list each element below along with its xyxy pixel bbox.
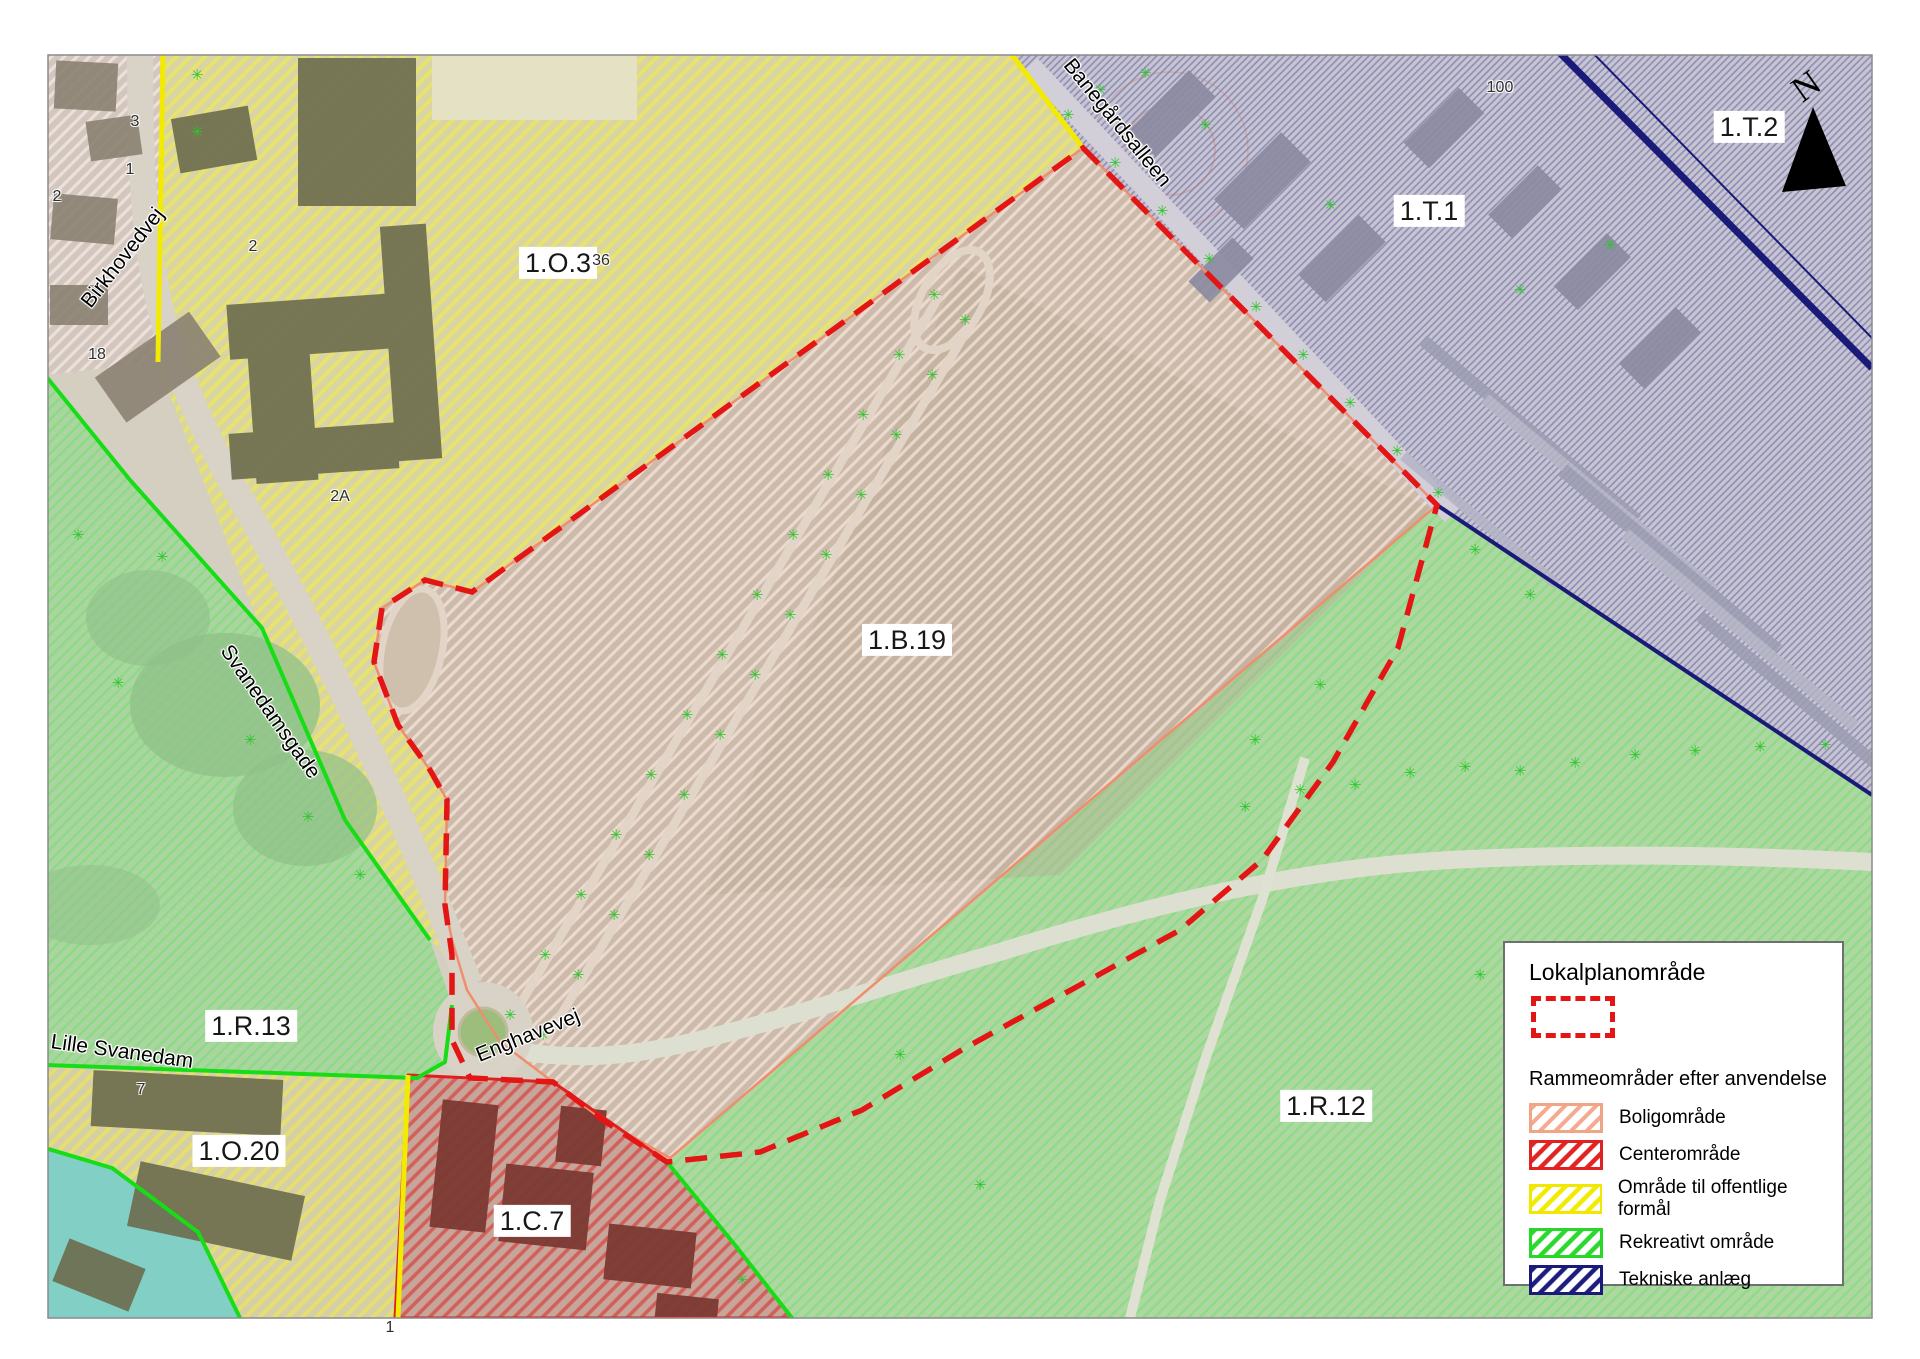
tree-symbol: ✳	[1062, 106, 1075, 124]
tree-symbol: ✳	[1109, 154, 1122, 172]
lokalplan-boundary-symbol	[1531, 996, 1615, 1038]
tree-symbol: ✳	[716, 646, 729, 664]
tree-symbol: ✳	[643, 846, 656, 864]
tree-symbol: ✳	[572, 966, 585, 984]
tree-symbol: ✳	[678, 786, 691, 804]
tree-symbol: ✳	[575, 886, 588, 904]
swatch-boligomraade	[1529, 1103, 1603, 1133]
tree-symbol: ✳	[1629, 746, 1642, 764]
lokalplan-map-page: ✳✳✳✳✳✳✳✳✳✳✳✳✳✳✳✳✳✳✳✳✳✳✳✳✳✳✳✳✳✳✳✳✳✳✳✳✳✳✳✳…	[0, 0, 1920, 1359]
tree-symbol: ✳	[1469, 541, 1482, 559]
legend-row-tekniske: Tekniske anlæg	[1529, 1265, 1842, 1295]
tree-symbol: ✳	[822, 466, 835, 484]
tree-symbol: ✳	[610, 826, 623, 844]
tree-symbol: ✳	[1314, 676, 1327, 694]
tree-symbol: ✳	[1203, 250, 1216, 268]
legend-label: Tekniske anlæg	[1619, 1269, 1751, 1291]
tree-symbol: ✳	[1250, 298, 1263, 316]
tree-symbol: ✳	[156, 548, 169, 566]
tree-symbol: ✳	[855, 486, 868, 504]
swatch-centeromraade	[1529, 1140, 1603, 1170]
tree-symbol: ✳	[1199, 116, 1212, 134]
tree-symbol: ✳	[1324, 196, 1337, 214]
tree-symbol: ✳	[736, 1271, 749, 1289]
tree-symbol: ✳	[354, 866, 367, 884]
tree-symbol: ✳	[1459, 758, 1472, 776]
tree-symbol: ✳	[645, 766, 658, 784]
tree-symbol: ✳	[191, 66, 204, 84]
legend-label: Område til offentlige formål	[1618, 1177, 1842, 1221]
legend-row-rekreativt: Rekreativt område	[1529, 1228, 1842, 1258]
tree-symbol: ✳	[1094, 81, 1107, 99]
tree-symbol: ✳	[1297, 346, 1310, 364]
legend-row-offentlige: Område til offentlige formål	[1529, 1177, 1842, 1221]
tree-symbol: ✳	[1344, 394, 1357, 412]
tree-symbol: ✳	[894, 1046, 907, 1064]
tree-symbol: ✳	[1249, 731, 1262, 749]
tree-symbol: ✳	[857, 406, 870, 424]
tree-symbol: ✳	[1569, 754, 1582, 772]
tree-symbol: ✳	[1349, 776, 1362, 794]
tree-symbol: ✳	[72, 526, 85, 544]
legend-label: Boligområde	[1619, 1107, 1726, 1129]
tree-symbol: ✳	[890, 426, 903, 444]
legend: Lokalplanområde Rammeområder efter anven…	[1503, 941, 1844, 1286]
tree-symbol: ✳	[1514, 762, 1527, 780]
swatch-offentlige	[1529, 1184, 1602, 1214]
tree-symbol: ✳	[1754, 738, 1767, 756]
tree-symbol: ✳	[1391, 442, 1404, 460]
tree-symbol: ✳	[714, 726, 727, 744]
tree-symbol: ✳	[1156, 202, 1169, 220]
legend-label: Rekreativt område	[1619, 1232, 1774, 1254]
tree-symbol: ✳	[1819, 736, 1832, 754]
legend-row-centeromraade: Centerområde	[1529, 1140, 1842, 1170]
legend-subtitle: Rammeområder efter anvendelse	[1529, 1068, 1842, 1091]
tree-symbol: ✳	[112, 674, 125, 692]
tree-symbol: ✳	[608, 906, 621, 924]
swatch-tekniske	[1529, 1265, 1603, 1295]
tree-symbol: ✳	[1604, 236, 1617, 254]
legend-row-boligomraade: Boligområde	[1529, 1103, 1842, 1133]
tree-symbol: ✳	[537, 1026, 550, 1044]
tree-symbol: ✳	[1474, 966, 1487, 984]
legend-title: Lokalplanområde	[1529, 959, 1842, 986]
tree-symbol: ✳	[1524, 586, 1537, 604]
tree-symbol: ✳	[784, 606, 797, 624]
tree-symbol: ✳	[539, 946, 552, 964]
tree-symbol: ✳	[1239, 798, 1252, 816]
swatch-rekreativt	[1529, 1228, 1603, 1258]
tree-symbol: ✳	[820, 546, 833, 564]
tree-symbol: ✳	[787, 526, 800, 544]
tree-symbol: ✳	[504, 1006, 517, 1024]
tree-symbol: ✳	[1514, 281, 1527, 299]
tree-symbol: ✳	[191, 123, 204, 141]
tree-symbol: ✳	[928, 286, 941, 304]
tree-symbol: ✳	[893, 346, 906, 364]
tree-symbol: ✳	[749, 666, 762, 684]
tree-symbol: ✳	[1139, 64, 1152, 82]
tree-symbol: ✳	[681, 706, 694, 724]
tree-symbol: ✳	[1294, 781, 1307, 799]
tree-symbol: ✳	[751, 586, 764, 604]
legend-label: Centerområde	[1619, 1144, 1740, 1166]
tree-symbol: ✳	[302, 808, 315, 826]
tree-symbol: ✳	[974, 1176, 987, 1194]
tree-symbol: ✳	[1404, 764, 1417, 782]
tree-symbol: ✳	[1689, 742, 1702, 760]
tree-symbol: ✳	[244, 731, 257, 749]
tree-symbol: ✳	[926, 366, 939, 384]
tree-symbol: ✳	[959, 311, 972, 329]
tree-symbol: ✳	[1432, 484, 1445, 502]
